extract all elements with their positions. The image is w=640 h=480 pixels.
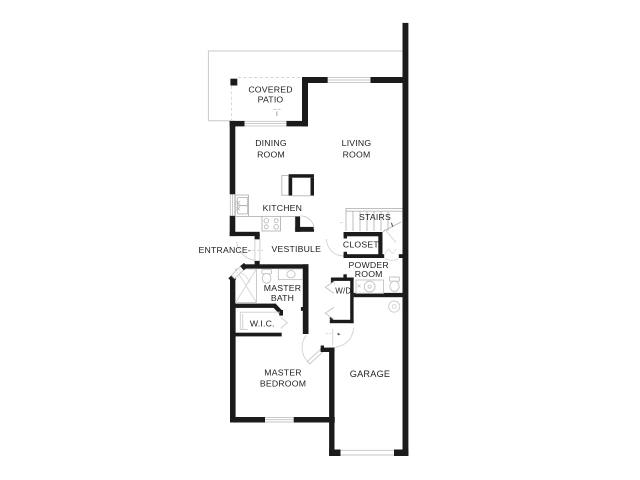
svg-text:STAIRS: STAIRS (359, 212, 391, 222)
svg-text:VESTIBULE: VESTIBULE (271, 244, 321, 254)
svg-text:LIVING: LIVING (342, 138, 372, 148)
svg-text:PATIO: PATIO (258, 95, 284, 105)
svg-text:W/D: W/D (335, 287, 351, 296)
svg-text:ROOM: ROOM (257, 149, 285, 159)
svg-text:ROOM: ROOM (355, 269, 383, 279)
svg-text:MASTER: MASTER (264, 367, 301, 377)
svg-text:W.I.C.: W.I.C. (250, 318, 275, 328)
svg-text:COVERED: COVERED (248, 84, 292, 94)
svg-text:BEDROOM: BEDROOM (260, 378, 306, 388)
svg-text:CLOSET: CLOSET (343, 240, 379, 250)
svg-text:GARAGE: GARAGE (350, 369, 391, 379)
svg-text:KITCHEN: KITCHEN (263, 203, 303, 213)
svg-text:DINING: DINING (255, 138, 287, 148)
svg-text:ROOM: ROOM (343, 149, 371, 159)
svg-text:MASTER: MASTER (264, 283, 301, 293)
svg-text:BATH: BATH (271, 293, 294, 303)
svg-text:ENTRANCE-: ENTRANCE- (199, 245, 251, 255)
